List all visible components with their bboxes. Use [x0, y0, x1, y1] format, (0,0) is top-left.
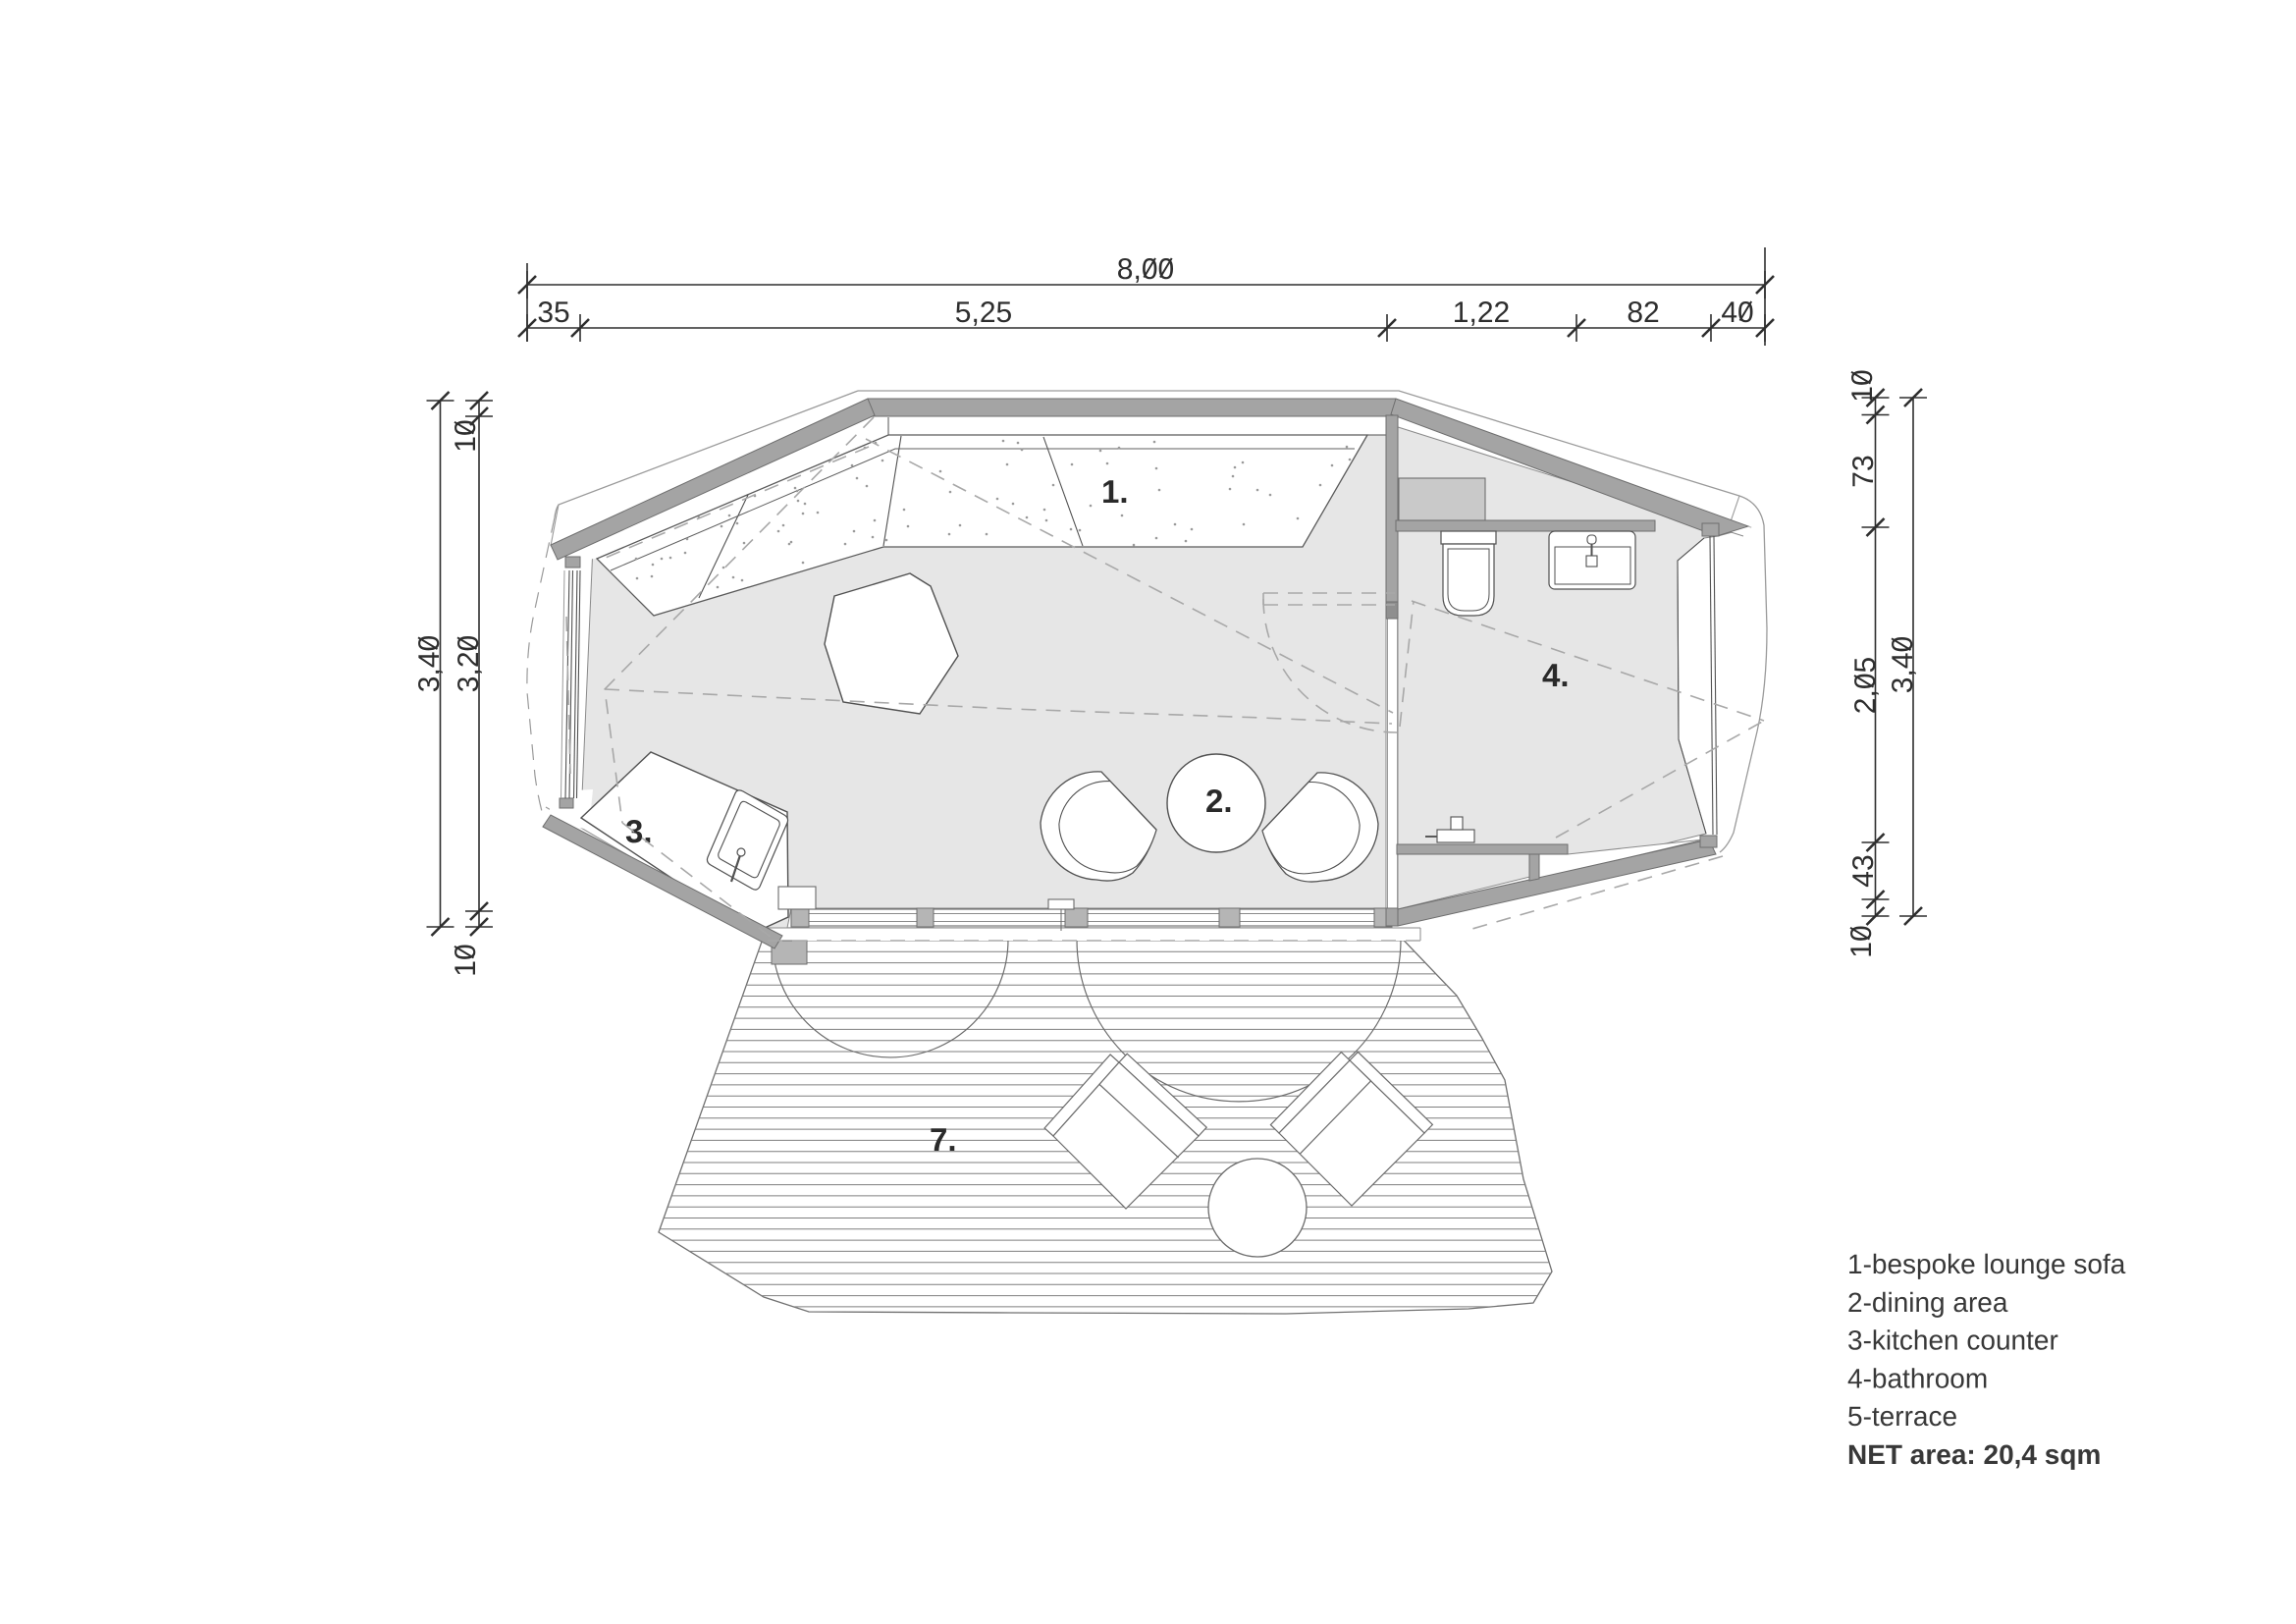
- svg-text:2,05: 2,05: [1849, 657, 1882, 714]
- svg-text:10: 10: [1846, 369, 1879, 402]
- svg-text:4.: 4.: [1542, 657, 1570, 693]
- svg-text:5-terrace: 5-terrace: [1847, 1401, 1957, 1432]
- svg-text:5,25: 5,25: [955, 297, 1012, 329]
- svg-text:10: 10: [1845, 925, 1878, 957]
- svg-text:73: 73: [1847, 455, 1880, 487]
- svg-text:NET area: 20,4 sqm: NET area: 20,4 sqm: [1847, 1439, 2101, 1470]
- svg-text:2-dining area: 2-dining area: [1847, 1287, 2008, 1318]
- svg-text:82: 82: [1627, 297, 1659, 329]
- svg-text:1-bespoke lounge sofa: 1-bespoke lounge sofa: [1847, 1249, 2126, 1279]
- svg-text:43: 43: [1847, 854, 1880, 887]
- svg-text:3-kitchen counter: 3-kitchen counter: [1847, 1326, 2058, 1356]
- svg-text:10: 10: [450, 944, 482, 976]
- svg-text:2.: 2.: [1205, 783, 1233, 819]
- svg-text:40: 40: [1721, 297, 1753, 329]
- svg-text:10: 10: [450, 419, 482, 452]
- svg-text:1,22: 1,22: [1453, 297, 1510, 329]
- svg-text:35: 35: [537, 297, 569, 329]
- svg-text:1.: 1.: [1101, 473, 1129, 510]
- svg-text:3.: 3.: [625, 813, 653, 849]
- svg-text:4-bathroom: 4-bathroom: [1847, 1363, 1988, 1393]
- svg-text:7.: 7.: [930, 1121, 957, 1158]
